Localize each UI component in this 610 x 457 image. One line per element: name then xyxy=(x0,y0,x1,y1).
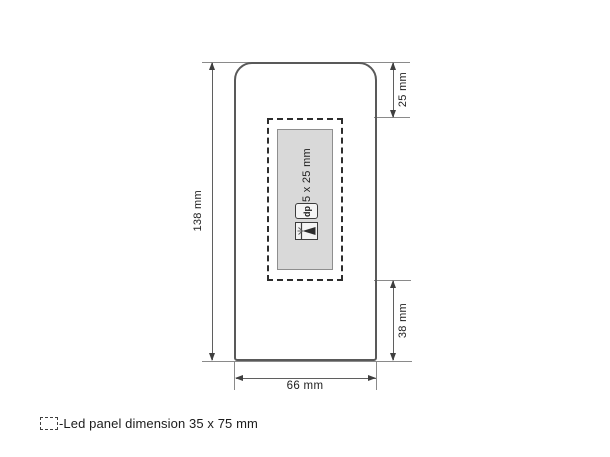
legend: -Led panel dimension 35 x 75 mm xyxy=(40,416,258,431)
height-dimension-label-box: 138 mm xyxy=(190,185,206,237)
width-dimension-label: 66 mm xyxy=(280,380,330,392)
panel-top-offset-label-box: 25 mm xyxy=(395,68,411,112)
panel-top-offset-dimension-line xyxy=(393,63,394,117)
width-dimension-line xyxy=(236,378,376,379)
width-arrow-left xyxy=(235,375,243,381)
digital-print-icon-label: dp xyxy=(302,206,312,217)
panel-bottom-offset-label: 38 mm xyxy=(397,303,409,338)
panel-bottom-offset-dimension-line xyxy=(393,281,394,360)
digital-print-icon: dp xyxy=(295,203,318,219)
panel-bottom-offset-label-box: 38 mm xyxy=(395,299,411,343)
height-dimension-label: 138 mm xyxy=(192,190,204,232)
led-panel-legend-swatch xyxy=(40,417,58,430)
panel-bottom-offset-arrow-top xyxy=(390,280,396,288)
height-dimension-line xyxy=(212,63,213,360)
height-arrow-bottom xyxy=(209,353,215,361)
print-area-panel: 65 x 25 mm dp xyxy=(277,129,333,270)
width-arrow-right xyxy=(368,375,376,381)
panel-bottom-offset-arrow-bottom xyxy=(390,353,396,361)
print-area-size-label: 65 x 25 mm xyxy=(301,148,313,208)
legend-label: -Led panel dimension 35 x 75 mm xyxy=(59,416,258,431)
print-area-size-label-box: 65 x 25 mm xyxy=(298,150,315,206)
extension-line-width-right xyxy=(376,362,377,390)
dimension-diagram: 65 x 25 mm dp 138 mm 25 mm 38 mm xyxy=(0,0,610,457)
height-arrow-top xyxy=(209,62,215,70)
laser-beam-glyph xyxy=(296,223,317,239)
panel-top-offset-label: 25 mm xyxy=(397,72,409,107)
laser-engraving-icon xyxy=(295,222,318,240)
